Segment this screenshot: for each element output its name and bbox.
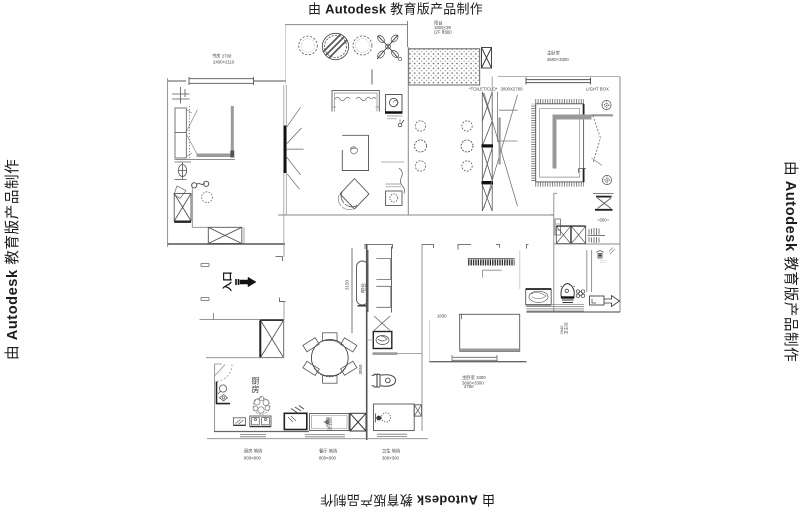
svg-text:3000X2700: 3000X2700 (501, 87, 524, 92)
svg-text:吧台: 吧台 (360, 283, 367, 293)
svg-text:厨房 地砖: 厨房 地砖 (244, 448, 263, 455)
svg-text:LIGHT BOX: LIGHT BOX (586, 87, 609, 92)
svg-text:由 Autodesk 教育版产品制作: 由 Autodesk 教育版产品制作 (4, 159, 21, 360)
svg-text:卫生 地砖: 卫生 地砖 (382, 448, 401, 455)
svg-text:3050: 3050 (358, 364, 363, 375)
svg-text:由 Autodesk 教育版产品制作: 由 Autodesk 教育版产品制作 (320, 493, 495, 508)
svg-text:2750: 2750 (464, 384, 474, 389)
svg-text:餐厅 地砖: 餐厅 地砖 (319, 448, 338, 455)
svg-text:书房 2700: 书房 2700 (212, 53, 232, 60)
svg-text:~600~: ~600~ (597, 218, 610, 223)
svg-text:2400×2110: 2400×2110 (213, 60, 235, 65)
svg-text:800×800: 800×800 (319, 456, 336, 461)
svg-text:1830: 1830 (437, 314, 447, 319)
svg-text:房: 房 (252, 384, 260, 394)
svg-text:(2F 阳台): (2F 阳台) (434, 29, 452, 36)
svg-text:主卧室: 主卧室 (547, 50, 561, 57)
svg-text:由 Autodesk 教育版产品制作: 由 Autodesk 教育版产品制作 (782, 161, 799, 362)
svg-text:3600×3300: 3600×3300 (547, 57, 569, 62)
svg-text:由 Autodesk 教育版产品制作: 由 Autodesk 教育版产品制作 (308, 2, 483, 17)
svg-text:3150: 3150 (345, 279, 350, 290)
svg-text:入口: 入口 (222, 272, 234, 292)
svg-text:卫生间: 卫生间 (563, 323, 569, 335)
svg-text:*TOILET/CLO*: *TOILET/CLO* (469, 87, 498, 92)
svg-text:800×800: 800×800 (244, 456, 261, 461)
svg-text:300×300: 300×300 (382, 456, 399, 461)
